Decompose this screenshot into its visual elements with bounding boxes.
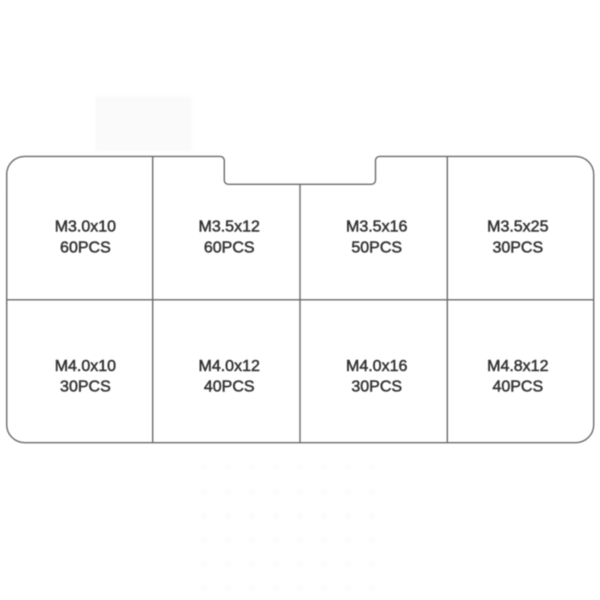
svg-text:M4.0x10: M4.0x10: [55, 358, 116, 375]
svg-text:M3.5x12: M3.5x12: [199, 219, 260, 236]
svg-text:60PCS: 60PCS: [60, 240, 111, 257]
svg-text:M4.0x12: M4.0x12: [199, 358, 260, 375]
svg-text:40PCS: 40PCS: [492, 379, 543, 396]
svg-text:M3.0x10: M3.0x10: [55, 219, 116, 236]
svg-text:30PCS: 30PCS: [492, 240, 543, 257]
svg-text:60PCS: 60PCS: [204, 240, 255, 257]
svg-text:M3.5x25: M3.5x25: [487, 219, 548, 236]
svg-text:50PCS: 50PCS: [351, 240, 402, 257]
svg-text:40PCS: 40PCS: [204, 379, 255, 396]
svg-text:30PCS: 30PCS: [60, 379, 111, 396]
svg-text:30PCS: 30PCS: [351, 379, 402, 396]
svg-text:M3.5x16: M3.5x16: [346, 219, 407, 236]
svg-text:M4.8x12: M4.8x12: [487, 358, 548, 375]
svg-text:M4.0x16: M4.0x16: [346, 358, 407, 375]
